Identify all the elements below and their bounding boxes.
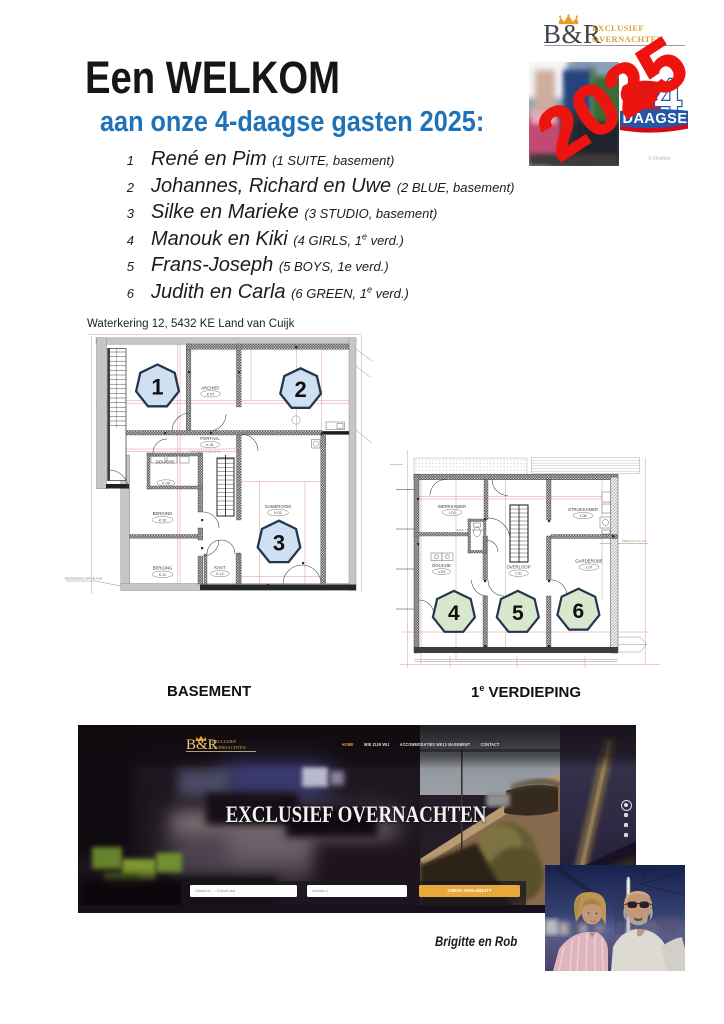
svg-text:GARDEROBE: GARDEROBE [575, 559, 603, 564]
svg-text:K.11: K.11 [159, 573, 166, 577]
svg-text:K.10: K.10 [159, 518, 166, 522]
svg-text:PORTAAL: PORTAAL [200, 436, 220, 441]
svg-text:WERKKAMER: WERKKAMER [438, 504, 466, 509]
svg-text:1.07: 1.07 [586, 566, 593, 570]
svg-text:PERGOLA 13. KG: PERGOLA 13. KG [622, 539, 647, 543]
svg-text:5: 5 [512, 602, 524, 625]
svg-text:STRIJKKAMER: STRIJKKAMER [568, 507, 598, 512]
svg-text:4: 4 [448, 602, 460, 625]
svg-text:BERGING: BERGING [153, 511, 173, 516]
svg-text:DOUCHE: DOUCHE [432, 563, 451, 568]
svg-text:1.03: 1.03 [438, 570, 445, 574]
svg-text:KAST: KAST [214, 565, 226, 570]
svg-text:BADK. MET DOUCHE: BADK. MET DOUCHE [457, 528, 484, 532]
svg-text:K.09: K.09 [162, 481, 169, 485]
svg-text:DOUCHE: DOUCHE [156, 460, 175, 465]
svg-text:BERGING: BERGING [153, 566, 173, 571]
svg-text:6: 6 [573, 600, 585, 623]
svg-text:2: 2 [294, 377, 306, 402]
svg-text:1.01: 1.01 [515, 572, 522, 576]
svg-text:GAMEROOM: GAMEROOM [265, 504, 291, 509]
svg-text:OMKLEDEN KIND OS-09: OMKLEDEN KIND OS-09 [190, 449, 221, 453]
svg-text:1.08: 1.08 [580, 514, 587, 518]
svg-text:K.01: K.01 [206, 443, 213, 447]
svg-text:K.12: K.12 [216, 572, 223, 576]
svg-text:1.02: 1.02 [449, 511, 456, 515]
svg-text:OVERLOOP: OVERLOOP [506, 565, 530, 570]
svg-text:RESTERENDE OPP. 86,5 M2: RESTERENDE OPP. 86,5 M2 [65, 577, 103, 581]
svg-text:K.02: K.02 [274, 511, 281, 515]
svg-text:K.07: K.07 [207, 392, 214, 396]
svg-text:1: 1 [151, 375, 163, 400]
svg-text:ARCHIEF: ARCHIEF [201, 386, 220, 391]
svg-text:3: 3 [273, 531, 285, 556]
